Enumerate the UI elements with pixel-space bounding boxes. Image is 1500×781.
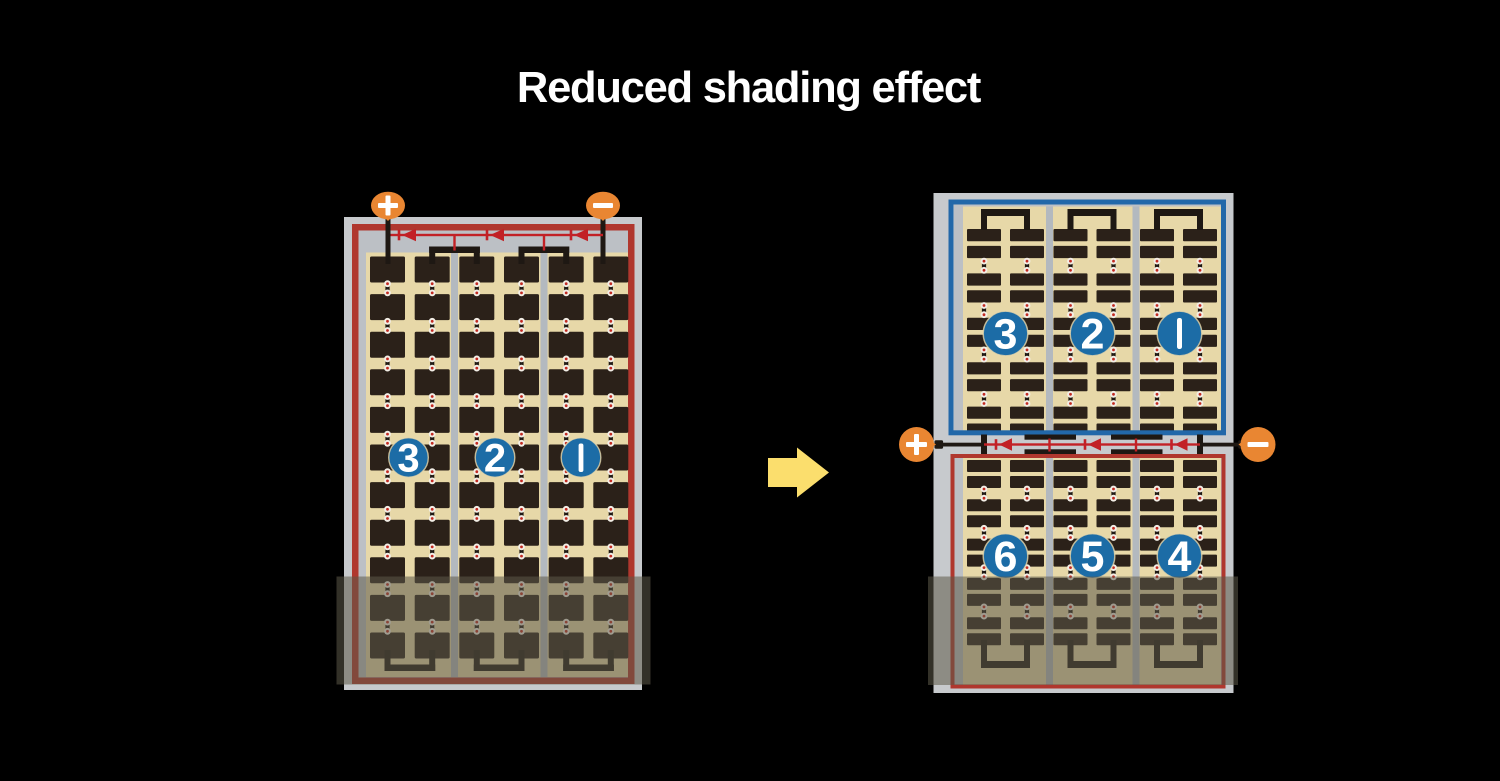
svg-text:3: 3 xyxy=(994,311,1018,359)
svg-text:Reduced shading effect: Reduced shading effect xyxy=(517,64,981,112)
svg-text:2: 2 xyxy=(484,436,506,480)
svg-text:5: 5 xyxy=(1081,533,1105,581)
svg-text:3: 3 xyxy=(397,436,419,480)
svg-text:2: 2 xyxy=(1081,311,1105,359)
svg-text:4: 4 xyxy=(1168,533,1192,581)
svg-text:6: 6 xyxy=(994,533,1018,581)
